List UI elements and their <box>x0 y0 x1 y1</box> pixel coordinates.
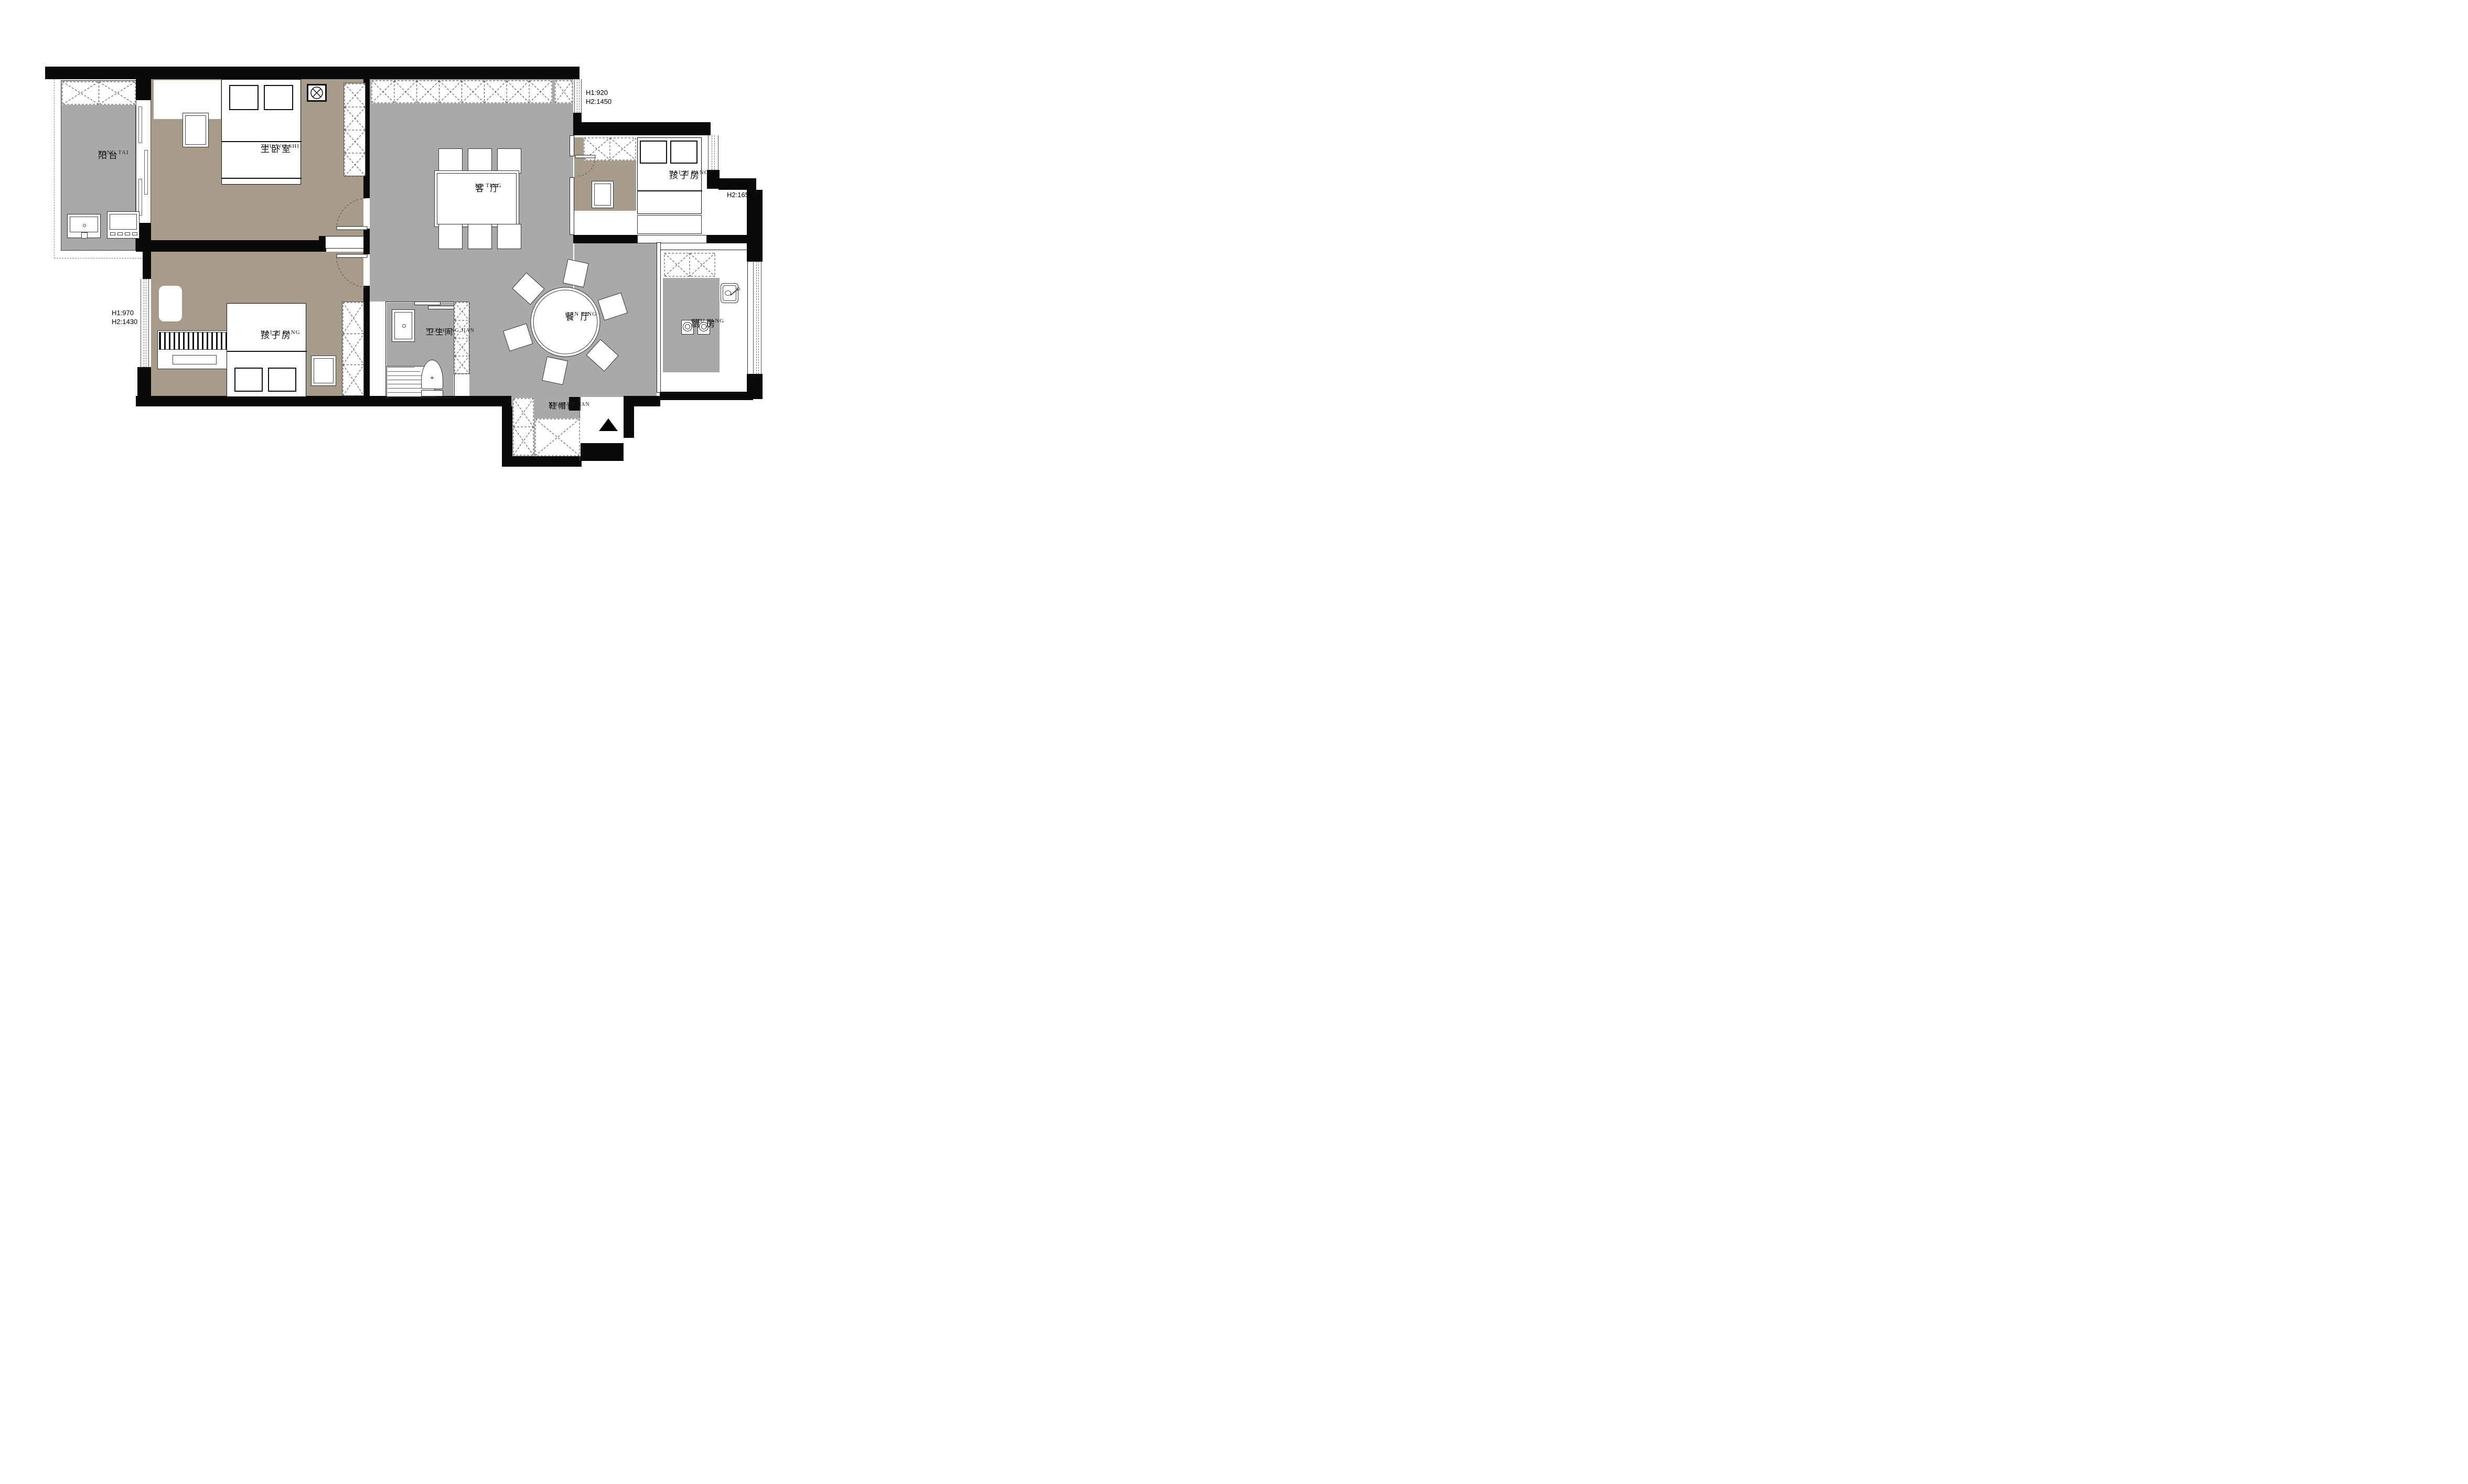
annotation-line: H2:1430 <box>112 317 137 326</box>
wall-top <box>45 67 580 79</box>
living-chair <box>468 224 492 249</box>
wall-bedroom-separator <box>136 240 326 252</box>
childleft-bed <box>227 303 306 397</box>
childleft-window <box>141 279 149 367</box>
wall-childleft-left-bottom <box>137 367 151 397</box>
annotation-window-left: H1:970 H2:1430 <box>112 308 137 326</box>
wall-kitchen-bottom <box>660 392 753 400</box>
dining-table-set <box>508 262 625 384</box>
living-label-py: KE TING <box>475 182 501 189</box>
wall-living-window-pier <box>573 113 582 122</box>
master-label-py: ZHU WO SHI <box>261 143 299 149</box>
master-desk <box>183 113 209 147</box>
bathroom-label-py: WEI SHENG JIAN <box>426 328 475 334</box>
living-chair <box>468 148 492 174</box>
laundry-sink <box>67 214 101 238</box>
wall-childright-west-lower <box>570 177 574 235</box>
piano <box>157 330 232 369</box>
childleft-wardrobe <box>342 302 364 396</box>
living-chair <box>438 224 463 249</box>
living-right-window <box>574 79 582 113</box>
washing-machine <box>107 211 140 239</box>
living-table <box>434 170 519 227</box>
wall-niche-stub <box>319 236 325 249</box>
wall-childright-window-block <box>707 170 720 189</box>
wall-balcony-slider-top-stub <box>136 79 151 100</box>
ceiling-lamp <box>307 84 327 102</box>
window-seat <box>637 235 707 243</box>
wall-bottom-center <box>624 396 660 406</box>
living-top-cabinet-end <box>555 80 573 103</box>
cloakroom-cabinet-bottom <box>535 418 580 456</box>
wall-cloakroom-bottom <box>502 456 582 467</box>
childright-bed-foot <box>637 215 702 234</box>
cloakroom-label-py: XIE MAO JIAN <box>549 402 590 407</box>
dining-label-py: CAN TING <box>565 311 597 317</box>
annotation-line: H1:935 <box>727 181 753 190</box>
living-chair <box>438 148 463 174</box>
annotation-window-right: H1:935 H2:1655 <box>727 181 753 199</box>
master-door <box>334 195 370 232</box>
childleft-door <box>334 253 370 289</box>
kitchen-cabinet <box>664 253 715 277</box>
childright-label-py: HAI ZI FANG <box>669 169 709 176</box>
bathroom-slider-panel <box>414 302 441 305</box>
living-top-cabinet <box>371 80 552 103</box>
living-chair <box>497 224 521 249</box>
kitchen-label-py: CHU FANG <box>691 318 724 324</box>
wall-bottom-west <box>136 396 511 406</box>
wall-childleft-left-top <box>143 252 151 279</box>
annotation-window-top-right: H1:920 H2:1450 <box>586 88 611 106</box>
balcony-slider <box>136 100 151 223</box>
wall-childright-west-upper <box>570 135 574 156</box>
wall-cloakroom-left <box>502 406 512 460</box>
wall-kitchen-right-bottom <box>747 374 763 399</box>
cloakroom-cabinet-left <box>513 398 534 456</box>
wall-childright-bottom-east <box>707 235 756 243</box>
toilet-base <box>421 390 443 396</box>
wall-childright-bottom-west <box>573 235 637 243</box>
master-bed <box>221 79 301 185</box>
niche-shelf <box>325 236 364 249</box>
annotation-line: H2:1450 <box>586 97 611 106</box>
annotation-line: H1:920 <box>586 88 611 97</box>
wall-childright-top <box>573 122 711 135</box>
childright-door <box>574 155 596 179</box>
wall-kitchen-right-top <box>747 190 763 262</box>
childleft-desk <box>311 356 336 386</box>
living-chair <box>497 148 521 174</box>
entrance-arrow <box>599 418 618 431</box>
wall-dining-kitchen <box>657 242 661 393</box>
childleft-label-py: HAI ZI FANG <box>261 329 301 336</box>
annotation-line: H2:1655 <box>727 190 753 199</box>
balcony-cabinet <box>62 81 136 105</box>
balcony-label-py: YANG TAI <box>98 149 129 156</box>
childright-desk <box>592 181 614 208</box>
kitchen-window <box>753 262 761 374</box>
wall-corridor-right <box>624 406 634 438</box>
bathroom-slider-panel <box>428 306 454 309</box>
childright-window <box>708 135 718 170</box>
kitchen-sink <box>721 283 738 303</box>
washbasin <box>392 309 415 342</box>
bathroom-cabinet <box>454 302 469 374</box>
wall-entry-threshold <box>581 443 624 461</box>
master-wardrobe <box>344 83 366 176</box>
annotation-line: H1:970 <box>112 308 137 317</box>
floor-plan: + 阳台 YANG TAI 主卧室 ZHU WO SHI <box>0 0 823 494</box>
childleft-rug <box>159 286 182 321</box>
wall-door-pier-mid <box>363 229 370 254</box>
